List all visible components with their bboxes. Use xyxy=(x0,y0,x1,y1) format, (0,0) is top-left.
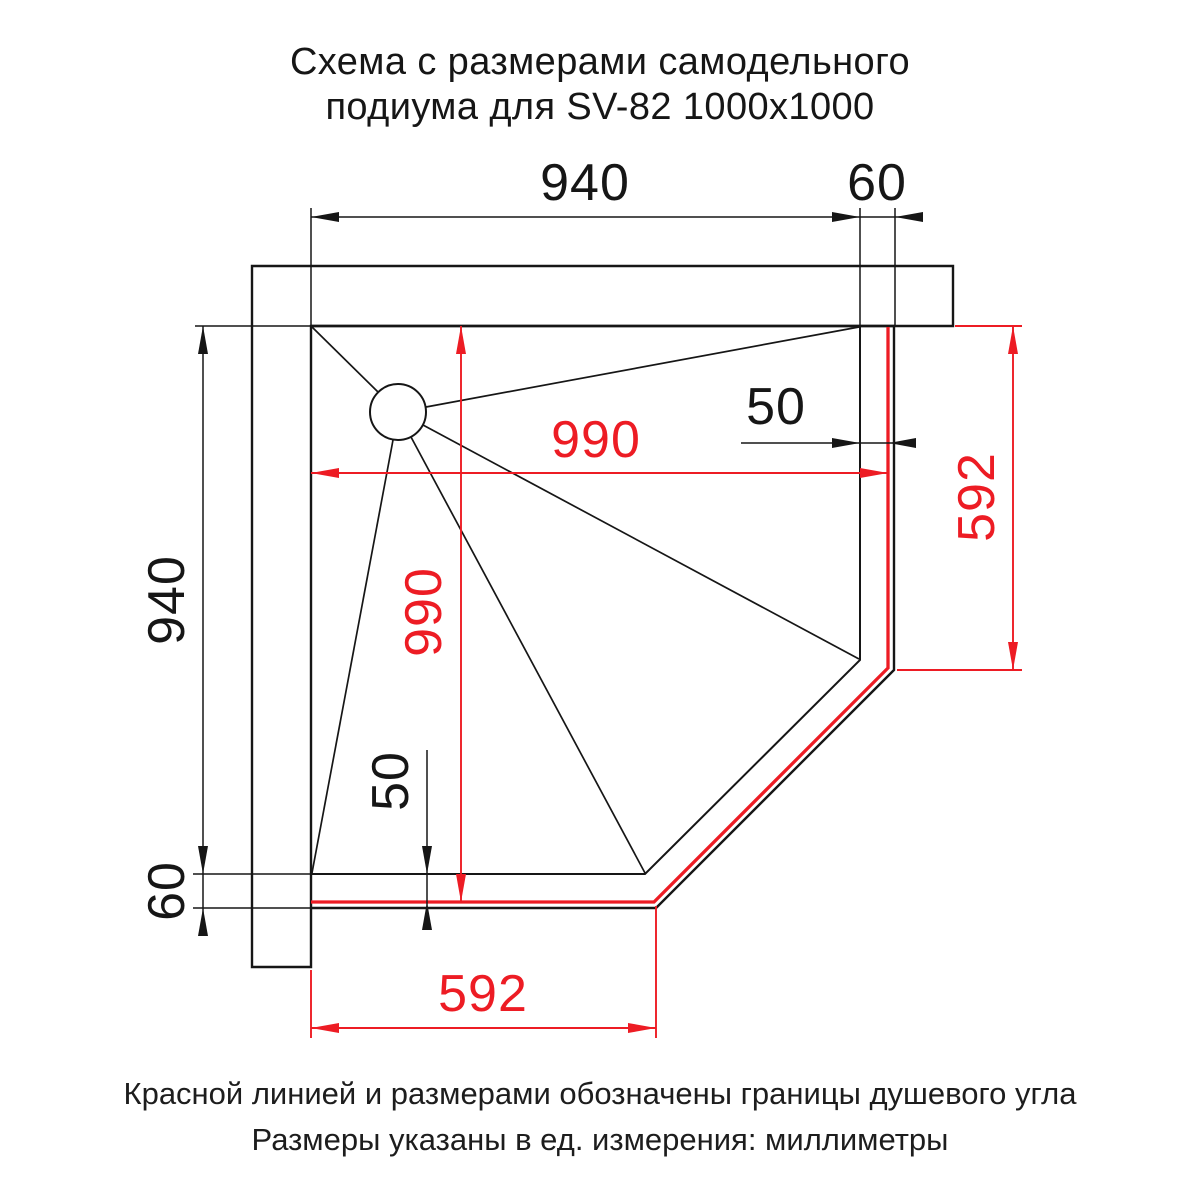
drain-circle xyxy=(370,384,426,440)
dim-label-shower-width: 990 xyxy=(551,411,641,469)
dim-label-shower-depth: 990 xyxy=(395,567,453,657)
dim-gap-50-right: 50 xyxy=(741,378,916,448)
dim-label-corner-cut-right: 592 xyxy=(948,452,1006,542)
dim-top-940-60: 940 60 xyxy=(311,154,923,326)
legend-note: Красной линией и размерами обозначены гр… xyxy=(0,1071,1200,1163)
dim-label-podium-edge-top: 60 xyxy=(847,154,907,212)
legend-line-2: Размеры указаны в ед. измерения: миллиме… xyxy=(0,1117,1200,1163)
dim-label-tray-offset-bottom: 50 xyxy=(362,751,420,811)
dim-shower-depth-990: 990 xyxy=(395,326,466,902)
dim-corner-cut-right-592: 592 xyxy=(897,326,1022,670)
dim-left-940-60: 940 60 xyxy=(138,326,311,936)
dim-label-podium-width: 940 xyxy=(540,154,630,212)
dim-corner-cut-bottom-592: 592 xyxy=(311,906,656,1038)
dim-label-podium-edge-bottom: 60 xyxy=(138,861,196,921)
podium-dimension-drawing: 940 60 940 60 50 50 xyxy=(0,0,1200,1200)
page: Схема с размерами самодельного подиума д… xyxy=(0,0,1200,1200)
legend-line-1: Красной линией и размерами обозначены гр… xyxy=(0,1071,1200,1117)
dim-label-podium-depth: 940 xyxy=(138,555,196,645)
dim-label-tray-offset-right: 50 xyxy=(746,378,806,436)
dim-label-corner-cut-bottom: 592 xyxy=(438,965,528,1023)
